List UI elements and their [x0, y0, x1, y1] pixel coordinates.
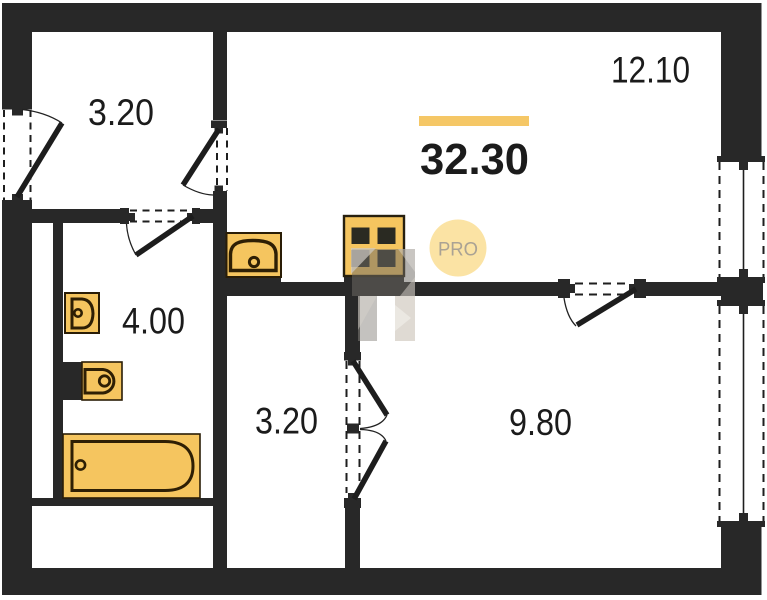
svg-text:4.00: 4.00	[122, 300, 185, 342]
svg-text:3.20: 3.20	[88, 91, 154, 133]
svg-text:12.10: 12.10	[611, 49, 690, 91]
svg-text:9.80: 9.80	[509, 401, 572, 443]
svg-text:3.20: 3.20	[255, 400, 318, 442]
svg-text:PRO: PRO	[438, 239, 478, 261]
svg-text:32.30: 32.30	[420, 135, 529, 184]
